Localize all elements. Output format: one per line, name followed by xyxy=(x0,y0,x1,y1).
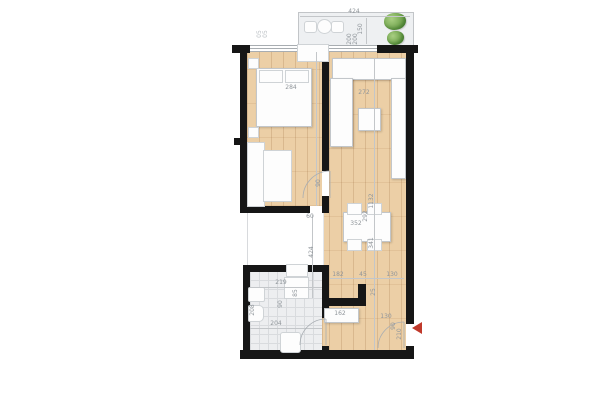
dim-line-balcony xyxy=(300,16,410,17)
wardrobe-block xyxy=(263,150,292,202)
dim-table-depth: 292 xyxy=(363,210,369,221)
balcony-chair-left xyxy=(304,21,317,33)
dim-bath-inner: 204 xyxy=(270,321,281,327)
balcony-door xyxy=(297,44,329,62)
bathroom-sink xyxy=(248,287,265,302)
dim-line-living-horizontal xyxy=(330,278,404,279)
floor-plan: 424 150 200 200 05 05 284 90 60 424 272 … xyxy=(0,0,600,400)
dim-corridor-width: 60 xyxy=(306,214,314,220)
bedroom-window xyxy=(250,45,297,52)
dim-planter-b: 200 xyxy=(353,33,359,44)
dim-chain-b: 45 xyxy=(359,272,367,278)
dim-corridor-length: 424 xyxy=(309,246,315,257)
wall-hall-north xyxy=(322,298,358,306)
wall-left xyxy=(240,52,247,213)
pillow xyxy=(285,70,309,83)
dim-line-bath-b xyxy=(250,328,322,329)
wall-bath-right-lower xyxy=(322,346,329,353)
wall-bath-top-b xyxy=(305,265,329,272)
dim-bed-width: 284 xyxy=(285,85,296,91)
pillow xyxy=(259,70,283,83)
wall-bath-top-a xyxy=(243,265,287,272)
wall-left-tick xyxy=(234,138,240,145)
dim-living-length: 1132 xyxy=(369,193,375,208)
dim-chain-d: 25 xyxy=(371,288,377,296)
dim-chain-e: 130 xyxy=(380,314,391,320)
balcony-chair-right xyxy=(331,21,344,33)
dim-balcony-width: 424 xyxy=(348,9,359,15)
dim-line-bath-a xyxy=(250,287,322,288)
dim-table-width: 352 xyxy=(350,221,361,227)
bathtub-fixture xyxy=(280,332,301,353)
kitchen-counter-left xyxy=(330,78,353,147)
dining-chair xyxy=(347,203,362,215)
living-window xyxy=(327,45,377,52)
nightstand xyxy=(248,58,259,69)
kitchen-island xyxy=(358,108,381,131)
entry-arrow-icon xyxy=(412,322,422,334)
dining-chair xyxy=(347,239,362,251)
dim-bath-fixture: 85 xyxy=(293,289,299,297)
dim-chain-c: 130 xyxy=(386,272,397,278)
balcony-table xyxy=(317,19,332,34)
dim-closet-width: 162 xyxy=(334,311,345,317)
dim-dining-length: 341 xyxy=(369,237,375,248)
shower-tray xyxy=(286,264,308,277)
dim-bath-door: 90 xyxy=(278,300,284,308)
wall-bedroom-living xyxy=(322,58,329,171)
wall-right-upper xyxy=(406,52,414,324)
dim-entry-door-height: 210 xyxy=(397,328,403,339)
dim-bedroom-door: 90 xyxy=(316,179,322,187)
dim-window-b: 05 xyxy=(263,30,269,38)
wall-kitchen-peninsula-v xyxy=(358,284,366,306)
dim-chain-a: 182 xyxy=(332,272,343,278)
wall-bedroom-south xyxy=(240,206,310,213)
dim-line-balcony-depth xyxy=(366,18,367,44)
wall-bedroom-door-nub xyxy=(322,196,329,213)
nightstand xyxy=(248,127,259,138)
dim-bath-depth: 208 xyxy=(250,304,256,315)
dim-bath-width: 219 xyxy=(275,280,286,286)
kitchen-counter-top xyxy=(332,58,406,80)
kitchen-counter-right xyxy=(391,78,406,179)
dim-kitchen-width: 272 xyxy=(358,90,369,96)
